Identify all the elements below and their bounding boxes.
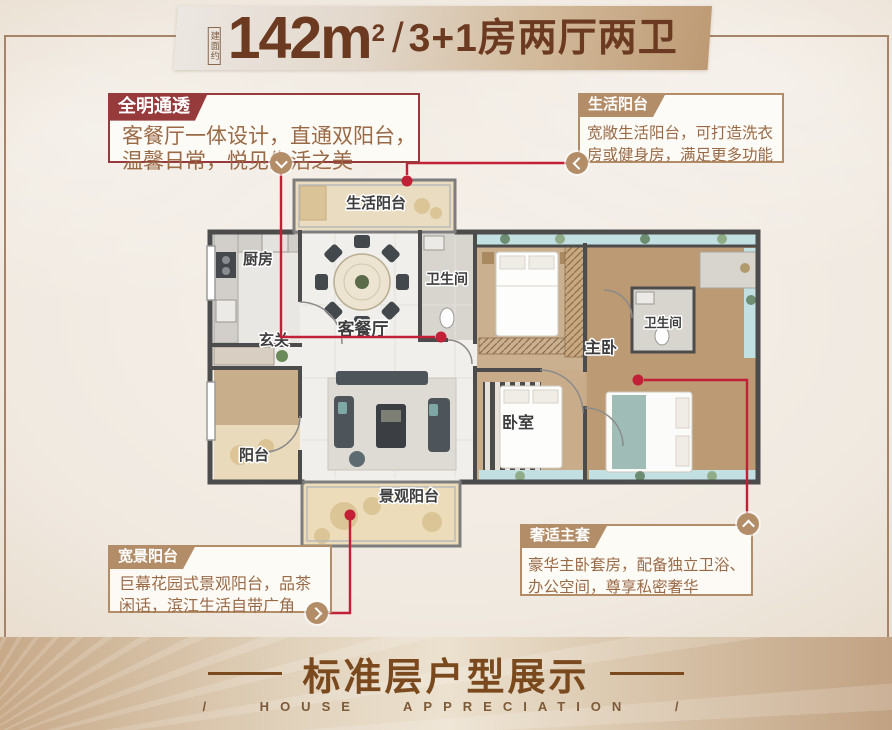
footer-title-row: 标准层户型展示 bbox=[0, 650, 892, 696]
chevron-left-icon[interactable] bbox=[566, 152, 588, 174]
callout-tag: 全明通透 bbox=[108, 93, 208, 121]
callout-tag: 宽景阳台 bbox=[108, 545, 196, 569]
callout-tag: 奢适主套 bbox=[520, 524, 608, 548]
callout-wide-balcony: 宽景阳台 巨幕花园式景观阳台，品茶 闲话，滨江生活自带广角 bbox=[108, 545, 332, 613]
leader-dot-1 bbox=[436, 332, 447, 343]
room-label-bedroom: 卧室 bbox=[502, 413, 534, 432]
room-label-view-balcony: 景观阳台 bbox=[379, 487, 439, 505]
leader-line-2 bbox=[407, 163, 567, 175]
room-label-service-balcony: 生活阳台 bbox=[346, 194, 406, 212]
chevron-up-icon[interactable] bbox=[737, 513, 759, 535]
left-dash bbox=[208, 672, 282, 675]
chevron-right-icon[interactable] bbox=[306, 602, 328, 624]
room-label-kitchen: 厨房 bbox=[243, 250, 273, 268]
room-label-foyer: 玄关 bbox=[259, 331, 289, 349]
right-dash bbox=[610, 672, 684, 675]
footer-subtitle: / HOUSE APPRECIATION / bbox=[0, 699, 892, 714]
room-label-bath1: 卫生间 bbox=[426, 271, 468, 287]
room-label-balcony: 阳台 bbox=[239, 446, 269, 464]
page-title: 标准层户型展示 bbox=[302, 646, 589, 701]
leader-dot-2 bbox=[402, 176, 413, 187]
chevron-down-icon[interactable] bbox=[270, 152, 292, 174]
room-label-bath2: 卫生间 bbox=[644, 315, 682, 330]
room-label-master: 主卧 bbox=[585, 338, 617, 357]
poster: 建面约 142m 2 / 3+1房两厅两卫 bbox=[0, 0, 892, 730]
living-room-set bbox=[328, 371, 456, 470]
leader-dot-3 bbox=[345, 510, 356, 521]
callout-master-suite: 奢适主套 豪华主卧套房，配备独立卫浴、 办公空间，尊享私密奢华 bbox=[520, 524, 753, 596]
callout-service-balcony: 生活阳台 宽敞生活阳台，可打造洗衣 房或健身房，满足更多功能 bbox=[578, 93, 784, 163]
leader-dot-4 bbox=[633, 375, 644, 386]
callout-tag: 生活阳台 bbox=[578, 93, 666, 117]
callout-bright-transparent: 全明通透 客餐厅一体设计，直通双阳台， 温馨日常，悦见生活之美 bbox=[108, 93, 420, 163]
